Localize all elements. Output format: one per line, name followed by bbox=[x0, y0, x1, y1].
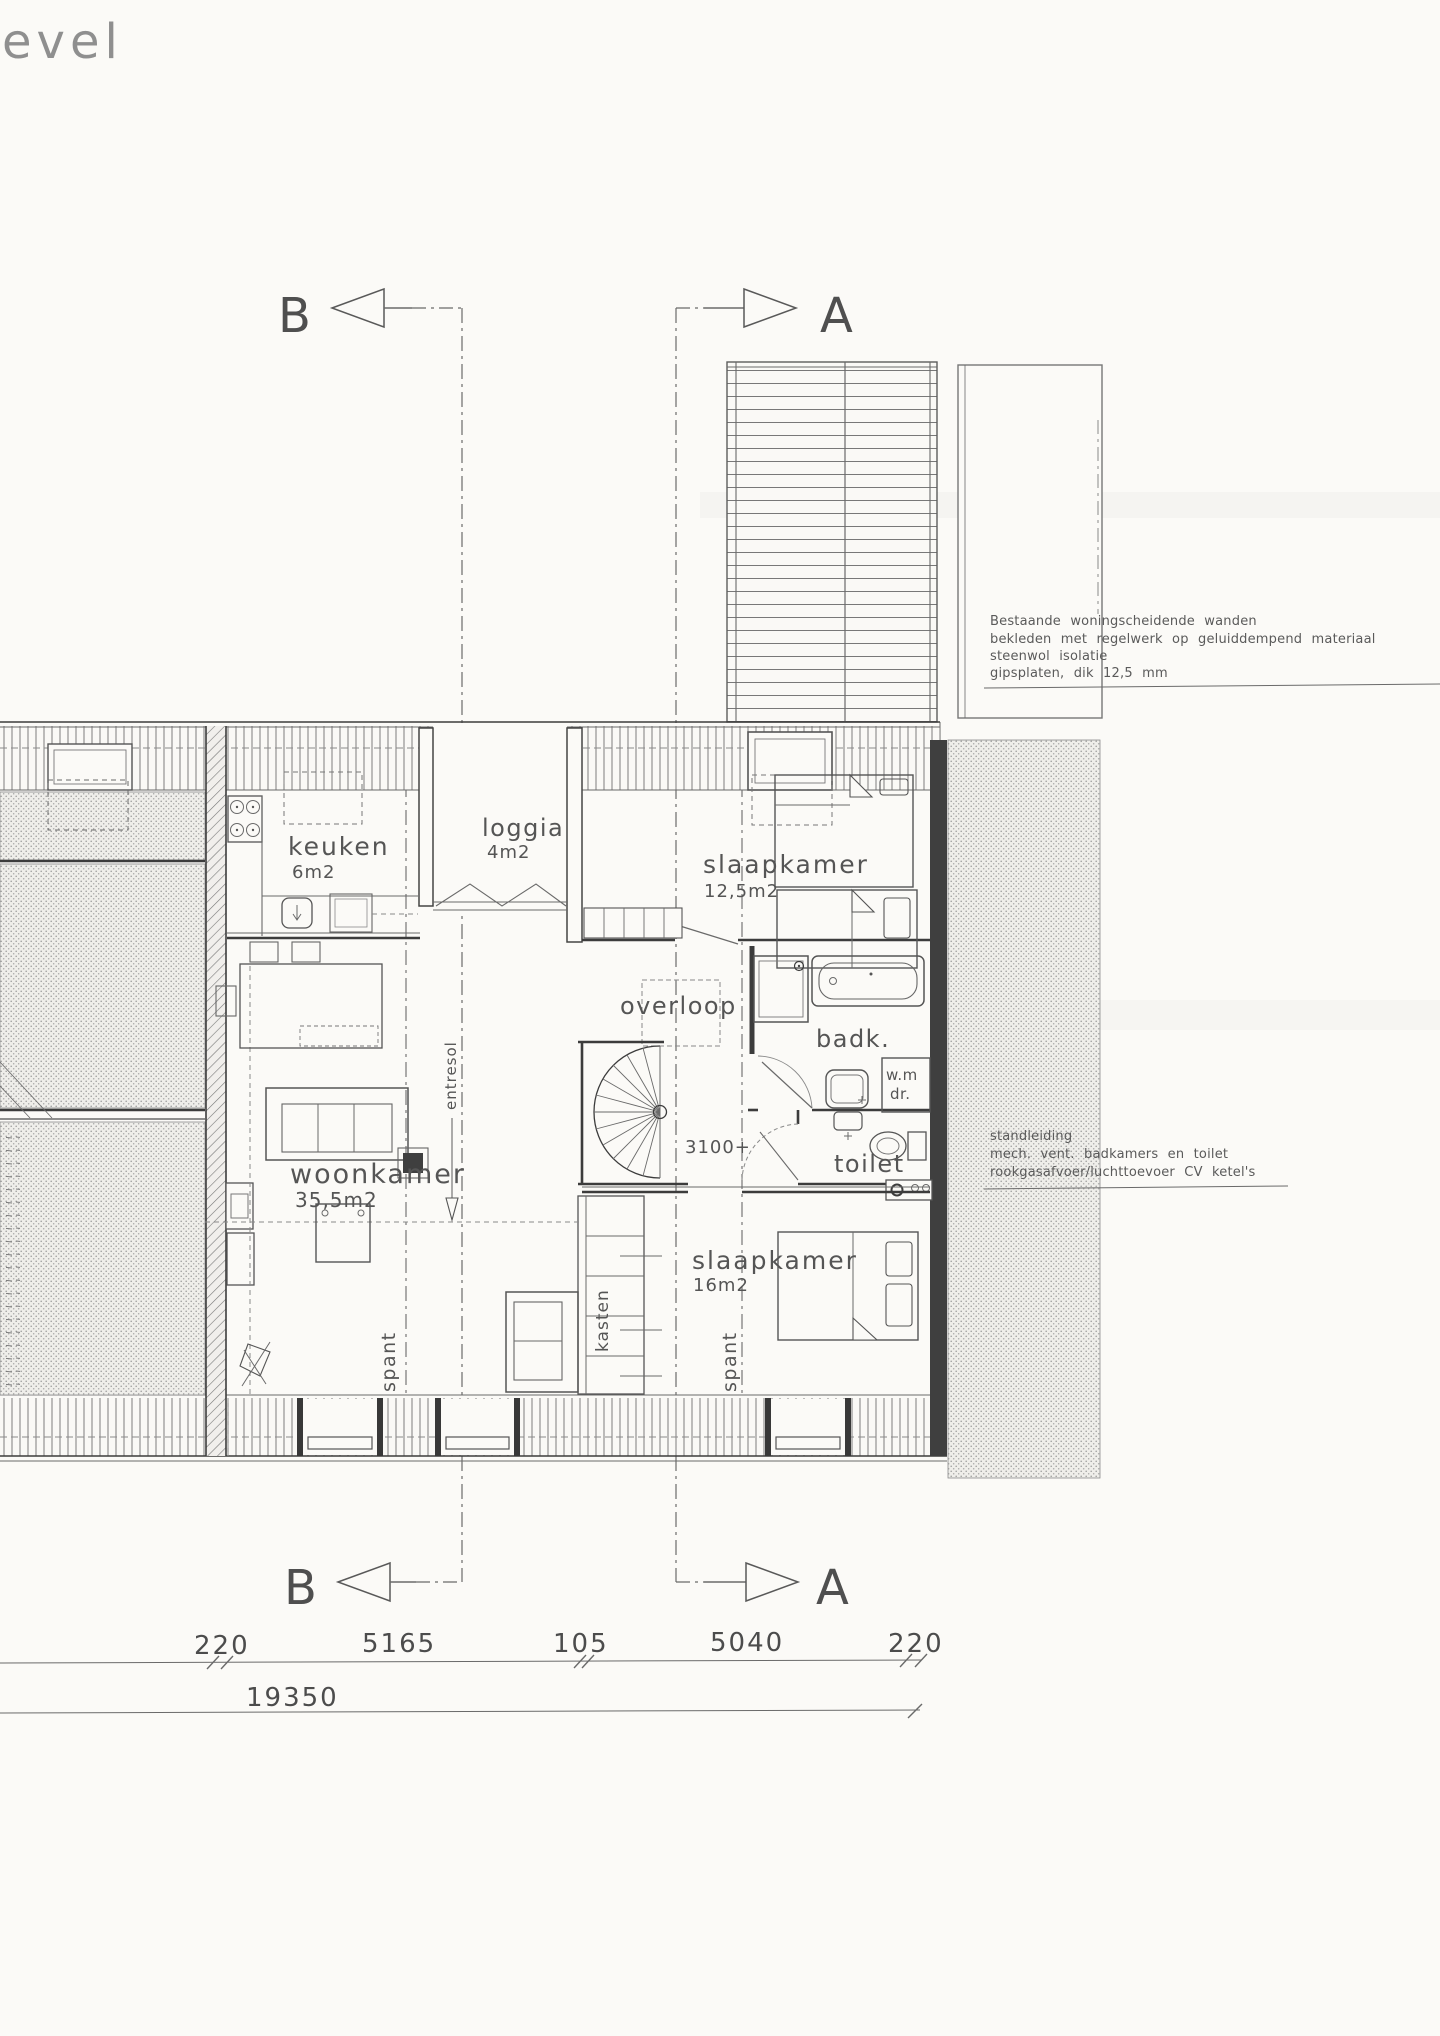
dimension-line-segments: 220 5165 105 5040 220 bbox=[0, 1628, 944, 1669]
dimension-line-total: 19350 bbox=[0, 1683, 922, 1718]
room-label: woonkamer bbox=[290, 1159, 466, 1190]
door-leaf bbox=[680, 926, 738, 944]
washer-dryer: w.m dr. bbox=[882, 1058, 930, 1112]
note-line: Bestaande woningscheidende wanden bbox=[990, 614, 1257, 629]
blanket-fold bbox=[852, 890, 874, 912]
chair bbox=[292, 942, 320, 962]
section-letter: A bbox=[816, 1560, 849, 1616]
cv-unit bbox=[886, 1180, 932, 1200]
section-marker-a-bottom: A bbox=[676, 1560, 849, 1616]
neighbour-dwelling-left bbox=[0, 780, 205, 1395]
dryer-label: dr. bbox=[890, 1085, 911, 1103]
dim-value: 220 bbox=[194, 1631, 250, 1661]
section-marker-b-top: B bbox=[278, 288, 462, 344]
party-wall-right bbox=[930, 740, 1100, 1478]
note-line: mech. vent. badkamers en toilet bbox=[990, 1147, 1228, 1162]
loggia: loggia 4m2 bbox=[419, 724, 582, 942]
pillow bbox=[886, 1242, 912, 1276]
hand-basin bbox=[834, 1112, 862, 1130]
bedroom-2: slaapkamer 16m2 spant bbox=[578, 1187, 930, 1394]
spiral-stair bbox=[594, 1046, 667, 1178]
closet-label: kasten bbox=[593, 1289, 613, 1352]
shower bbox=[754, 956, 808, 1022]
landing-overloop: overloop 3100+ bbox=[578, 908, 751, 1184]
washbasin bbox=[826, 1070, 868, 1108]
pillow bbox=[886, 1284, 912, 1326]
kitchen-appliance bbox=[330, 894, 372, 932]
section-marker-a-top: A bbox=[676, 288, 853, 344]
washer-label: w.m bbox=[886, 1066, 918, 1084]
truss-label: spant bbox=[378, 1331, 400, 1392]
pillow bbox=[884, 898, 910, 938]
truss-label: spant bbox=[719, 1331, 741, 1392]
chimney-niche bbox=[226, 1183, 253, 1229]
room-label: loggia bbox=[482, 814, 564, 842]
dim-value: 105 bbox=[553, 1629, 609, 1659]
room-area: 4m2 bbox=[487, 842, 530, 863]
closet-row bbox=[584, 908, 682, 938]
sofa bbox=[506, 1292, 578, 1392]
chair bbox=[250, 942, 278, 962]
bedroom-1: slaapkamer 12,5m2 bbox=[582, 775, 930, 968]
dim-value: 5040 bbox=[710, 1628, 784, 1658]
loggia-wall bbox=[419, 728, 433, 906]
page-title-fragment: evel bbox=[2, 14, 123, 70]
bottom-facade-band bbox=[0, 1395, 947, 1461]
closet-kasten bbox=[578, 1196, 662, 1394]
room-area: 12,5m2 bbox=[704, 881, 779, 902]
scanned-floor-plan-page: evel B A bbox=[0, 0, 1440, 2036]
dormer-window bbox=[48, 744, 132, 790]
note-line: rookgasafvoer/luchttoevoer CV ketel's bbox=[990, 1165, 1256, 1180]
stairwell-block bbox=[727, 362, 940, 740]
facade-window bbox=[303, 1399, 377, 1455]
room-area: 6m2 bbox=[292, 862, 335, 883]
room-label: keuken bbox=[288, 832, 390, 861]
section-arrow-left-icon bbox=[338, 1563, 390, 1601]
living-room: woonkamer 35,5m2 spant entresol kasten bbox=[205, 942, 613, 1394]
dim-total-value: 19350 bbox=[246, 1683, 339, 1713]
note-line: bekleden met regelwerk op geluiddempend … bbox=[990, 632, 1376, 647]
room-label: slaapkamer bbox=[692, 1246, 858, 1275]
note-line: gipsplaten, dik 12,5 mm bbox=[990, 666, 1168, 681]
door-leaf bbox=[760, 1132, 798, 1180]
dim-value: 5165 bbox=[362, 1629, 436, 1659]
bedroom-wall bbox=[567, 728, 582, 942]
room-label: slaapkamer bbox=[703, 850, 869, 879]
room-area: 35,5m2 bbox=[295, 1188, 378, 1212]
kitchen: keuken 6m2 bbox=[227, 772, 420, 938]
sofa bbox=[266, 1088, 408, 1160]
room-label: badk. bbox=[816, 1025, 890, 1053]
stair-height-label: 3100+ bbox=[685, 1137, 751, 1158]
section-letter: B bbox=[284, 1560, 317, 1616]
coffee-table bbox=[316, 1204, 370, 1262]
facade-window bbox=[771, 1399, 845, 1455]
dim-value: 220 bbox=[888, 1629, 944, 1659]
section-arrow-right-icon bbox=[746, 1563, 798, 1601]
party-wall-note: Bestaande woningscheidende wanden bekled… bbox=[984, 614, 1440, 688]
door-leaf bbox=[762, 1062, 812, 1108]
facade-window bbox=[441, 1399, 514, 1455]
dormer-window bbox=[748, 732, 832, 790]
section-marker-b-bottom: B bbox=[284, 1560, 462, 1616]
dining-table bbox=[216, 942, 382, 1048]
bathtub bbox=[812, 956, 924, 1006]
section-arrow-right-icon bbox=[744, 289, 796, 327]
note-line: steenwol isolatie bbox=[990, 649, 1107, 664]
note-line: standleiding bbox=[990, 1129, 1072, 1144]
toilet-room: toilet bbox=[742, 1110, 932, 1200]
section-letter: A bbox=[820, 288, 853, 344]
neighbour-dwelling-right bbox=[948, 740, 1100, 1478]
room-label: toilet bbox=[834, 1150, 905, 1178]
floor-plan-drawing: evel B A bbox=[0, 0, 1440, 2036]
bathroom: w.m dr. badk. bbox=[748, 946, 930, 1112]
section-arrow-left-icon bbox=[332, 289, 384, 327]
room-area: 16m2 bbox=[693, 1275, 749, 1296]
entresol-label: entresol bbox=[442, 1041, 460, 1110]
plant bbox=[240, 1342, 270, 1386]
blanket-fold bbox=[853, 1318, 877, 1340]
room-label: overloop bbox=[620, 992, 737, 1020]
section-letter: B bbox=[278, 288, 311, 344]
